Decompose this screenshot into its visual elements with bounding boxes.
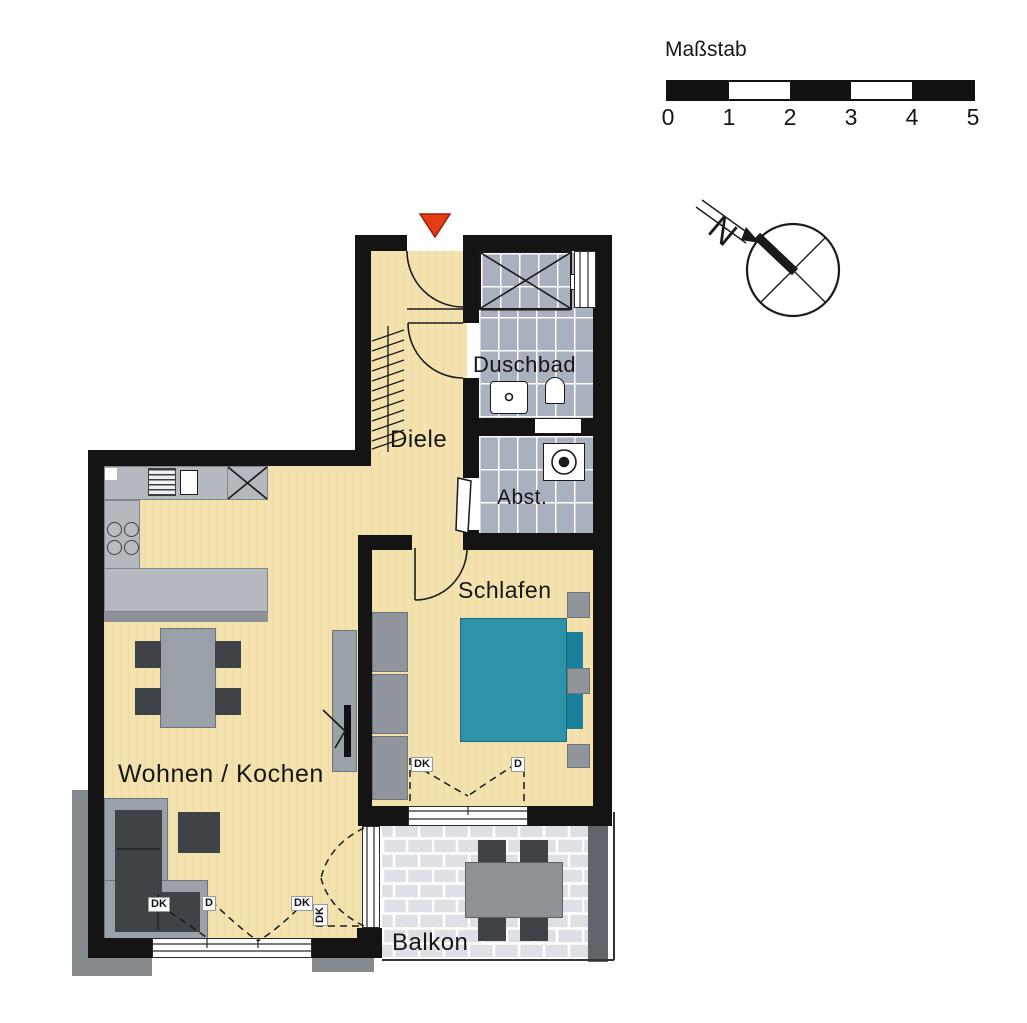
- kitchen-sink-basin: [180, 470, 198, 495]
- scale-segment: [851, 82, 912, 99]
- entrance-marker: [420, 214, 450, 237]
- wall-living-bottom-left: [88, 938, 152, 958]
- room-label-schlafen: Schlafen: [458, 577, 552, 604]
- scale-tick: 3: [845, 104, 858, 131]
- bed-pillow: [567, 632, 583, 668]
- compass-rose: N: [696, 200, 839, 316]
- balcony-right-wall: [588, 812, 608, 962]
- exterior-trim-left: [72, 790, 88, 976]
- kitchen-peninsula-edge: [104, 612, 268, 622]
- scale-tick: 2: [784, 104, 797, 131]
- window-type-label: DK: [411, 757, 433, 772]
- compass-north-label: N: [701, 209, 744, 254]
- compass-cross: [760, 237, 826, 303]
- room-label-balkon: Balkon: [392, 929, 468, 957]
- nightstand: [567, 592, 590, 618]
- kitchen-peninsula: [104, 568, 268, 612]
- wardrobe-section: [372, 612, 408, 672]
- sofa-seat-vertical: [115, 810, 162, 894]
- wall-bath-left-upper: [463, 251, 479, 323]
- floor-diele: [371, 251, 467, 550]
- window-bedroom-bottom: [408, 806, 528, 826]
- compass-circle: [747, 224, 839, 316]
- window-type-label: DK: [313, 904, 328, 926]
- scale-segment: [668, 82, 729, 99]
- room-label-duschbad: Duschbad: [473, 352, 576, 378]
- scale-tick: 5: [967, 104, 980, 131]
- exterior-trim-bottom-left: [72, 956, 152, 976]
- bathroom-sink: [490, 381, 528, 414]
- wall-bath-left-lower: [463, 378, 479, 418]
- kitchen-sink-drainer: [148, 468, 176, 496]
- balcony-door-glazing: [362, 826, 380, 928]
- wall-storage-left-upper: [463, 436, 479, 478]
- balcony-chair: [478, 840, 506, 862]
- nightstand: [567, 744, 590, 768]
- scale-segment: [912, 82, 973, 99]
- toilet: [545, 377, 565, 404]
- dining-chair: [135, 688, 161, 715]
- dining-table: [160, 628, 216, 728]
- bed: [460, 618, 567, 742]
- room-label-abst: Abst.: [497, 486, 547, 510]
- compass-north-pointer: [757, 236, 795, 272]
- wall-living-left: [88, 450, 104, 958]
- dining-chair: [215, 641, 241, 668]
- wall-bedroom-bottom-left: [358, 806, 408, 826]
- cooktop-burner: [124, 522, 139, 537]
- tv-screen: [344, 705, 351, 757]
- scale-bar-title: Maßstab: [665, 38, 747, 62]
- nightstand: [567, 668, 590, 694]
- wardrobe-section: [372, 736, 408, 800]
- scale-tick: 0: [662, 104, 675, 131]
- window-type-label: DK: [291, 896, 313, 911]
- wall-storage-bottom: [463, 533, 612, 550]
- cooktop-burner: [124, 540, 139, 555]
- wall-right: [593, 251, 612, 826]
- room-label-diele: Diele: [390, 426, 447, 454]
- balcony-table: [465, 862, 563, 918]
- scale-tick-labels: 0 1 2 3 4 5: [668, 104, 973, 132]
- wall-bedroom-top: [368, 535, 412, 550]
- dining-chair: [215, 688, 241, 715]
- dining-chair: [135, 641, 161, 668]
- window-bathroom: [574, 251, 596, 308]
- window-type-label: D: [202, 896, 216, 911]
- wall-balcony-door-stub: [357, 928, 382, 958]
- wall-hall-left: [355, 235, 371, 466]
- side-table: [178, 812, 220, 853]
- kitchen-counter-notch: [105, 468, 117, 480]
- exterior-trim-bottom-right: [312, 956, 374, 972]
- wall-top-right: [463, 235, 612, 251]
- toilet-cistern: [535, 419, 581, 433]
- wall-bedroom-bottom-right: [528, 806, 612, 826]
- wardrobe-section: [372, 674, 408, 734]
- scale-segment: [729, 82, 790, 99]
- window-type-label: DK: [148, 897, 170, 912]
- washing-machine: [543, 443, 585, 481]
- scale-segment: [790, 82, 851, 99]
- kitchen-appliance: [227, 466, 268, 500]
- window-living-bottom: [152, 938, 312, 958]
- compass-north-arrow-shaft: [696, 200, 752, 243]
- cooktop-burner: [107, 540, 122, 555]
- balcony-chair: [478, 918, 506, 941]
- scale-tick: 1: [723, 104, 736, 131]
- compass-north-arrowhead: [741, 227, 760, 243]
- bed-pillow: [567, 694, 583, 729]
- floor-plan-page: Maßstab 0 1 2 3 4 5: [0, 0, 1027, 1023]
- balcony-chair: [520, 840, 548, 862]
- scale-bar: [666, 80, 975, 101]
- shower: [479, 251, 572, 310]
- cooktop-burner: [107, 522, 122, 537]
- wall-bedroom-left: [358, 535, 372, 812]
- window-type-label: D: [511, 757, 525, 772]
- balcony-chair: [520, 918, 548, 941]
- room-label-wohnen-kochen: Wohnen / Kochen: [118, 760, 324, 789]
- scale-tick: 4: [906, 104, 919, 131]
- wall-living-top: [88, 450, 371, 466]
